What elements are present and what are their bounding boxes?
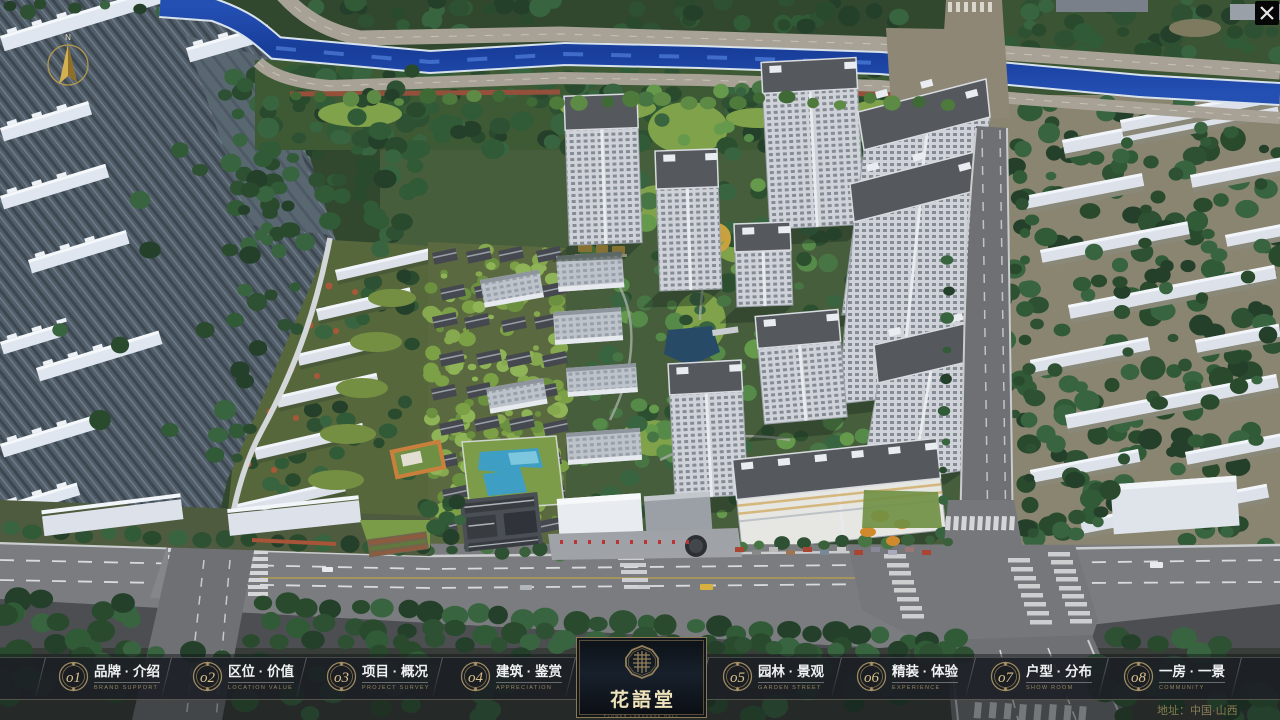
svg-text:o7: o7: [998, 670, 1015, 686]
svg-text:o2: o2: [200, 670, 216, 686]
svg-text:o4: o4: [468, 670, 484, 686]
svg-text:o6: o6: [864, 670, 880, 686]
svg-text:o1: o1: [66, 670, 81, 686]
svg-text:o8: o8: [1131, 670, 1147, 686]
svg-text:o5: o5: [730, 670, 746, 686]
svg-text:o3: o3: [334, 670, 349, 686]
svg-text:N: N: [65, 33, 71, 42]
